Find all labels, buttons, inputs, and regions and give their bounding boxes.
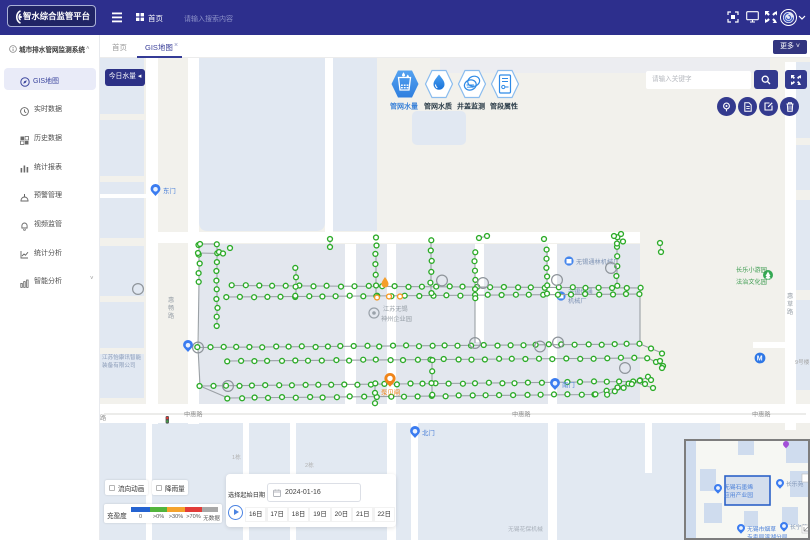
svg-text:专卖局滨湖分局: 专卖局滨湖分局: [747, 533, 788, 540]
svg-text:1栋: 1栋: [232, 453, 241, 461]
svg-text:管网水量: 管网水量: [390, 102, 418, 111]
svg-text:法治文化园: 法治文化园: [736, 278, 767, 286]
svg-text:东门: 东门: [163, 186, 176, 195]
svg-text:井盖监测: 井盖监测: [457, 102, 485, 111]
svg-text:中惠路: 中惠路: [752, 411, 771, 419]
svg-text:惠: 惠: [168, 296, 174, 304]
svg-text:南门: 南门: [562, 380, 575, 389]
svg-text:江苏怡康讯智能: 江苏怡康讯智能: [102, 353, 142, 361]
svg-text:管网水质: 管网水质: [424, 102, 452, 111]
svg-text:中惠路: 中惠路: [512, 411, 531, 419]
svg-text:长乐苑: 长乐苑: [786, 480, 804, 488]
svg-text:草: 草: [787, 300, 793, 308]
svg-text:机械厂: 机械厂: [568, 297, 587, 305]
svg-text:北门: 北门: [422, 428, 435, 437]
svg-text:惠: 惠: [787, 292, 793, 300]
svg-text:路: 路: [168, 312, 175, 320]
svg-text:泵贝闸: 泵贝闸: [381, 389, 400, 397]
svg-text:无锡花保机械: 无锡花保机械: [508, 525, 543, 533]
svg-text:无锡通林机械厂: 无锡通林机械厂: [576, 258, 619, 266]
svg-text:无锡市烟草: 无锡市烟草: [747, 525, 776, 533]
svg-text:中惠路: 中惠路: [184, 411, 203, 419]
svg-text:江苏无锡: 江苏无锡: [383, 305, 408, 313]
svg-text:管段属性: 管段属性: [490, 102, 518, 111]
svg-text:长乐小游园: 长乐小游园: [736, 266, 767, 274]
svg-text:路: 路: [787, 308, 794, 316]
svg-text:神州企业园: 神州企业园: [381, 315, 412, 323]
svg-text:畅: 畅: [168, 304, 174, 312]
svg-text:9号楼: 9号楼: [795, 358, 810, 366]
svg-text:M: M: [757, 356, 763, 363]
svg-text:路: 路: [100, 414, 107, 422]
svg-text:2栋: 2栋: [305, 461, 314, 469]
svg-text:装备有限公司: 装备有限公司: [102, 361, 136, 369]
svg-text:无锡石墨烯: 无锡石墨烯: [724, 483, 753, 491]
svg-text:应用产业园: 应用产业园: [724, 491, 753, 499]
